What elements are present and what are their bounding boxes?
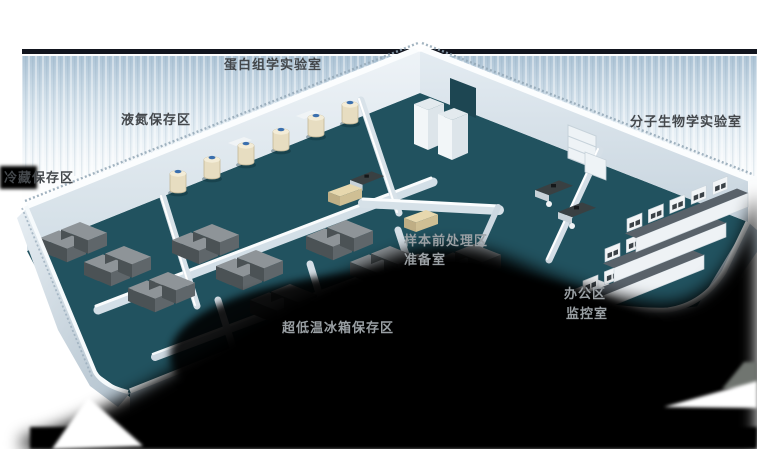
label-proteomics-lab: 蛋白组学实验室 xyxy=(224,57,322,72)
label-ult-freezer-storage: 超低温冰箱保存区 xyxy=(282,320,394,335)
label-monitoring-room: 监控室 xyxy=(566,306,608,321)
label-sample-pretreatment-area: 样本前处理区 xyxy=(404,233,488,248)
floorplan-render xyxy=(0,0,757,449)
label-cold-storage: 冷藏保存区 xyxy=(4,170,74,185)
label-molecular-biology-lab: 分子生物学实验室 xyxy=(630,114,742,129)
label-office-area: 办公区 xyxy=(564,286,606,301)
lab-floorplan-scene: 蛋白组学实验室 液氮保存区 冷藏保存区 分子生物学实验室 样本前处理区 准备室 … xyxy=(0,0,757,449)
label-liquid-nitrogen-storage: 液氮保存区 xyxy=(121,112,191,127)
backdrop-horizon-line xyxy=(22,49,757,54)
label-prep-room: 准备室 xyxy=(404,252,446,267)
